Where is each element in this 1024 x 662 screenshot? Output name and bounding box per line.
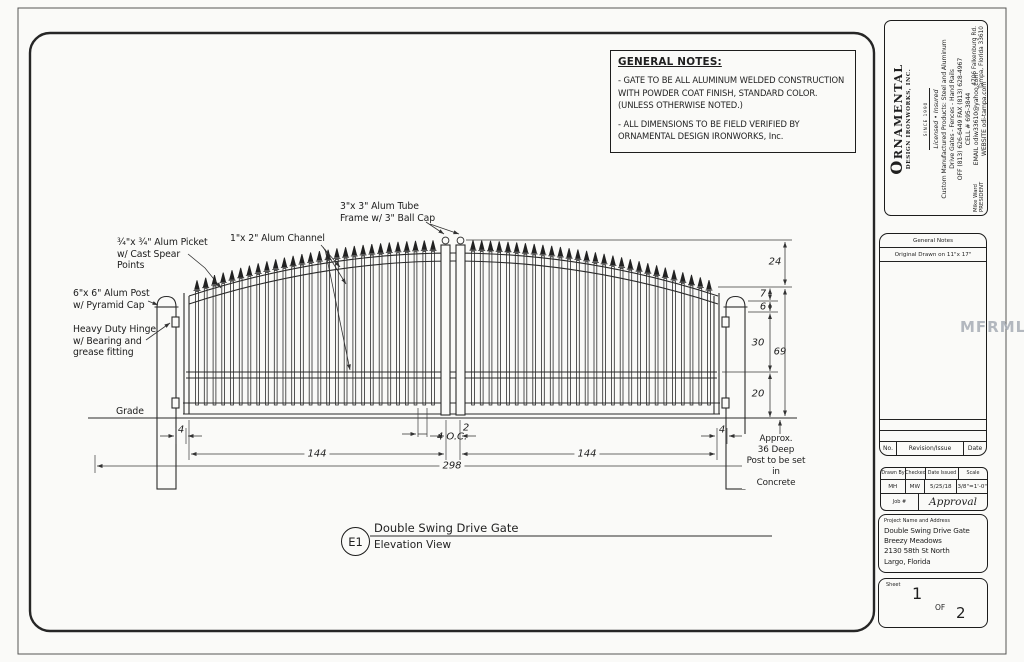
company-logo-initial: O	[887, 159, 906, 174]
dim-center-gap: 2	[463, 423, 469, 434]
grade-label: Grade	[116, 406, 144, 418]
address-line1: 4706 Falkenburg Rd.	[972, 26, 979, 89]
hinge-label: Heavy Duty Hinge w/ Bearing and grease f…	[73, 324, 156, 359]
project-block-label: Project Name and Address	[884, 518, 982, 524]
center-stile-left	[441, 245, 450, 415]
scale-label: Scale	[959, 468, 987, 479]
revision-empty-area	[880, 262, 986, 419]
company-since: SINCE 1990	[923, 88, 930, 151]
revision-row-empty-2	[880, 430, 986, 441]
dim-overall: 298	[439, 461, 464, 472]
dim-69: 69	[774, 347, 787, 358]
company-cell: CELL # 695-3844	[965, 21, 972, 216]
view-subtitle: Elevation View	[374, 539, 451, 551]
sheet-block: Sheet 1 OF 2	[878, 578, 988, 628]
sheet-number: 1	[912, 584, 922, 603]
concrete-note: Approx. 36 Deep Post to be set in Concre…	[742, 434, 810, 489]
dim-leaf-right: 144	[574, 449, 599, 460]
revision-table-header: No. Revision/Issue Date	[880, 441, 986, 455]
ball-cap-left	[442, 237, 449, 244]
dim-6: 6	[760, 302, 766, 313]
project-block: Project Name and Address Double Swing Dr…	[878, 514, 988, 573]
mls-watermark: MFRMLS	[960, 318, 1024, 336]
dim-right-gap: 4	[719, 425, 725, 436]
dim-20: 20	[752, 389, 765, 400]
company-products: Custom Manufactured Products: Steel and …	[941, 21, 948, 216]
sheet-of: OF	[935, 603, 945, 612]
approval-row: Job # Approval	[881, 493, 987, 510]
ball-cap-right	[457, 237, 464, 244]
general-note-1: - GATE TO BE ALL ALUMINUM WELDED CONSTRU…	[618, 74, 848, 112]
hinge-top-left	[172, 317, 179, 327]
drawn-by-value: MH	[881, 480, 906, 493]
pickets	[194, 240, 713, 405]
original-drawn-note: Original Drawn on 11"x 17"	[880, 248, 986, 262]
scale-value: 3/8"=1'-0"	[957, 480, 987, 493]
tube-label: 3"x 3" Alum Tube Frame w/ 3" Ball Cap	[340, 201, 435, 224]
general-notes-title: GENERAL NOTES:	[618, 56, 848, 68]
revision-col-date: Date	[963, 442, 986, 455]
right-post-cap	[724, 297, 748, 308]
company-footer: Mike Ward PRESIDENT 4706 Falkenburg Rd. …	[972, 26, 986, 212]
checked-label: Checked	[906, 468, 926, 479]
drawn-by-label: Drawn By	[881, 468, 906, 479]
address-line2: Tampa, Florida 33610	[979, 26, 986, 89]
sheet-label: Sheet	[886, 582, 900, 588]
hinge-bottom-left	[172, 398, 179, 408]
dim-arch-rise: 24	[769, 257, 782, 268]
company-logo-rest: RNAMENTAL	[892, 63, 905, 159]
scanned-drawing-page: ¾"x ¾" Alum Picket w/ Cast Spear Points …	[0, 0, 1024, 662]
contact-name: Mike Ward	[973, 182, 980, 212]
revision-row-empty-1	[880, 419, 986, 430]
dim-30: 30	[752, 338, 765, 349]
channel-label: 1"x 2" Alum Channel	[230, 233, 325, 245]
checked-value: MW	[906, 480, 926, 493]
company-phone: OFF (813) 626-6449 FAX (813) 628-4967	[957, 21, 964, 216]
gate-geometry	[88, 237, 797, 489]
post-label: 6"x 6" Alum Post w/ Pyramid Cap	[73, 288, 150, 311]
center-stile-right	[456, 245, 465, 415]
dim-left-gap: 4	[178, 425, 184, 436]
date-issued-label: Date Issued	[926, 468, 959, 479]
company-logo: ORNAMENTAL	[887, 21, 906, 216]
company-licensed: Licensed • Insured	[933, 21, 940, 216]
revision-block-header: General Notes	[880, 234, 986, 248]
project-name-address: Double Swing Drive Gate Breezy Meadows 2…	[884, 526, 982, 567]
company-info-rotated: ORNAMENTAL DESIGN IRONWORKS, INC. SINCE …	[885, 21, 988, 216]
view-title: Double Swing Drive Gate	[374, 521, 518, 535]
sheet-total: 2	[956, 604, 966, 622]
revision-block: General Notes Original Drawn on 11"x 17"…	[879, 233, 987, 456]
company-trades: Drive Gates - Fences - Hand Rails	[949, 21, 956, 216]
dim-7: 7	[760, 289, 766, 300]
picket-label: ¾"x ¾" Alum Picket w/ Cast Spear Points	[117, 237, 208, 272]
company-address: 4706 Falkenburg Rd. Tampa, Florida 33610	[972, 26, 986, 89]
revision-col-no: No.	[880, 442, 897, 455]
general-notes-box: GENERAL NOTES: - GATE TO BE ALL ALUMINUM…	[610, 50, 856, 153]
dim-leaf-left: 144	[304, 449, 329, 460]
hinge-top-right	[722, 317, 729, 327]
company-contact: Mike Ward PRESIDENT	[973, 182, 987, 212]
drawing-info-block: Drawn By Checked Date Issued Scale MH MW…	[880, 467, 988, 511]
job-number-label: Job #	[881, 494, 919, 510]
revision-col-label: Revision/Issue	[897, 442, 963, 455]
info-value-row: MH MW 5/25/18 3/8"=1'-0"	[881, 479, 987, 493]
hinge-bottom-right	[722, 398, 729, 408]
approval-label: Approval	[919, 494, 987, 510]
detail-reference-bubble: E1	[341, 527, 370, 556]
date-issued-value: 5/25/18	[925, 480, 957, 493]
general-note-2: - ALL DIMENSIONS TO BE FIELD VERIFIED BY…	[618, 118, 848, 143]
contact-title: PRESIDENT	[979, 182, 986, 212]
left-post-cap	[155, 297, 179, 308]
company-info-block: ORNAMENTAL DESIGN IRONWORKS, INC. SINCE …	[884, 20, 988, 216]
info-header-row: Drawn By Checked Date Issued Scale	[881, 468, 987, 479]
